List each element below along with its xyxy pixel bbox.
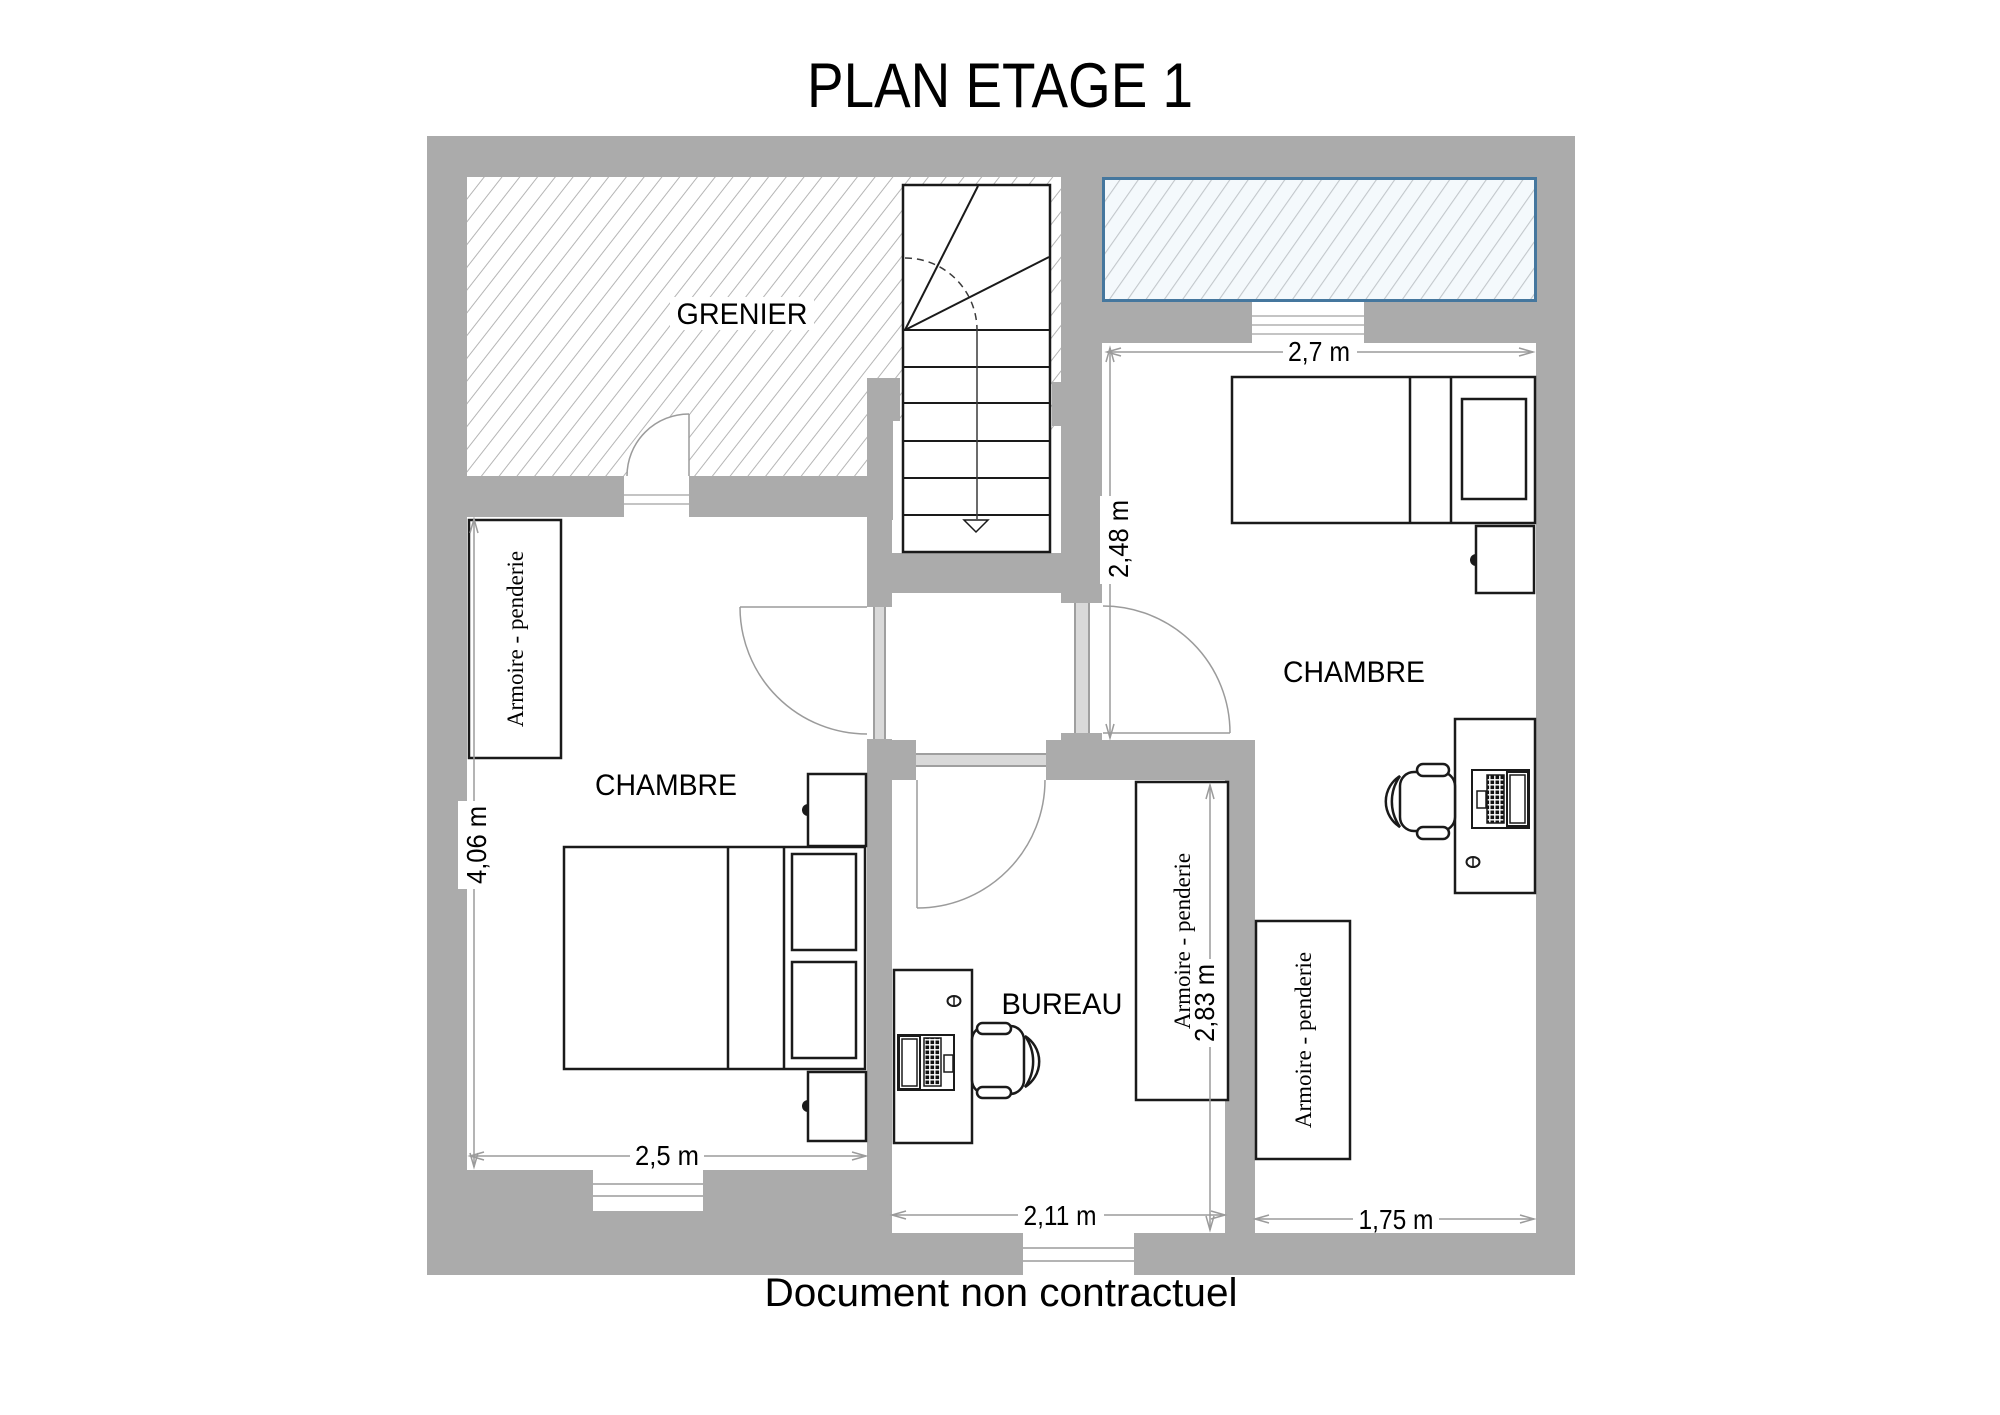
svg-text:2,83 m: 2,83 m [1189,964,1220,1042]
svg-text:GRENIER: GRENIER [677,298,808,331]
svg-text:BUREAU: BUREAU [1002,988,1123,1021]
svg-text:Document non contractuel: Document non contractuel [765,1271,1238,1315]
svg-text:PLAN ETAGE 1: PLAN ETAGE 1 [807,51,1193,121]
svg-text:Armoire - penderie: Armoire - penderie [503,551,528,727]
svg-text:2,11 m: 2,11 m [1024,1200,1097,1231]
svg-text:CHAMBRE: CHAMBRE [595,769,737,802]
svg-text:2,7 m: 2,7 m [1288,336,1350,367]
svg-text:Armoire - penderie: Armoire - penderie [1291,952,1316,1128]
svg-text:1,75 m: 1,75 m [1359,1204,1434,1235]
svg-text:CHAMBRE: CHAMBRE [1283,656,1425,689]
svg-text:2,5 m: 2,5 m [635,1140,699,1171]
svg-text:2,48 m: 2,48 m [1103,500,1134,578]
svg-text:4,06 m: 4,06 m [461,806,492,884]
